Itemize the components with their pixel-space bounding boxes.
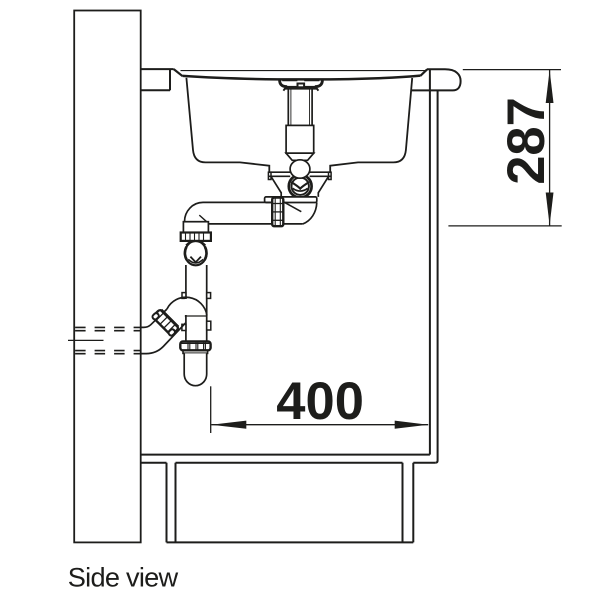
svg-text:400: 400 <box>276 372 364 431</box>
svg-text:Side view: Side view <box>68 562 179 593</box>
svg-text:287: 287 <box>497 97 556 185</box>
